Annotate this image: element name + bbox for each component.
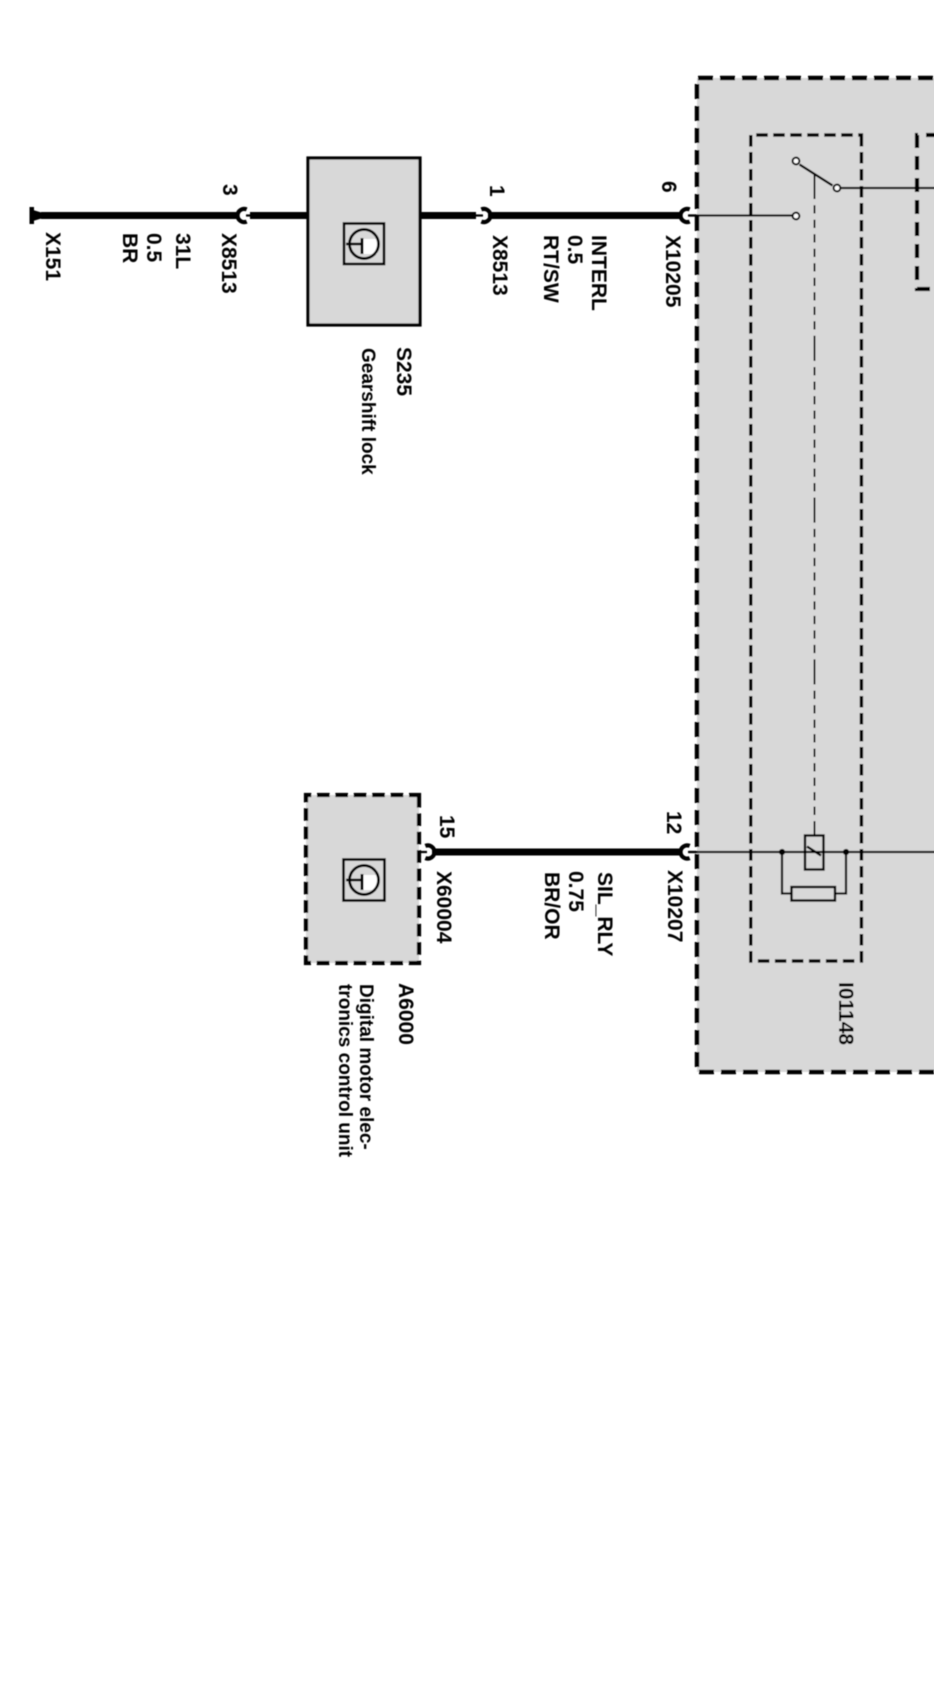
svg-text:1: 1 (485, 185, 508, 197)
svg-text:X8513: X8513 (217, 233, 240, 294)
svg-text:X10205: X10205 (661, 235, 684, 308)
svg-text:6: 6 (657, 181, 680, 193)
svg-text:15: 15 (435, 815, 458, 839)
svg-text:BR: BR (118, 233, 141, 263)
svg-text:X8513: X8513 (488, 235, 511, 296)
svg-text:SIL_RLY: SIL_RLY (593, 872, 616, 956)
svg-text:Gearshift lock: Gearshift lock (357, 348, 378, 475)
svg-text:31L: 31L (171, 233, 194, 269)
svg-text:S235: S235 (392, 347, 415, 396)
svg-text:Digital motor elec-: Digital motor elec- (355, 984, 376, 1150)
svg-text:X10207: X10207 (663, 870, 686, 942)
svg-text:I01148: I01148 (834, 982, 857, 1045)
svg-text:3: 3 (218, 184, 241, 196)
svg-text:0.5: 0.5 (142, 233, 165, 263)
svg-text:12: 12 (662, 811, 685, 834)
svg-text:RT/SW: RT/SW (539, 235, 562, 303)
svg-text:tronics control unit: tronics control unit (334, 984, 355, 1158)
svg-text:0.75: 0.75 (564, 871, 587, 912)
svg-text:X151: X151 (41, 232, 64, 281)
svg-text:INTERL: INTERL (587, 235, 610, 311)
svg-text:BR/OR: BR/OR (540, 872, 563, 940)
svg-text:X60004: X60004 (432, 871, 455, 944)
svg-text:A6000: A6000 (394, 983, 417, 1045)
svg-text:0.5: 0.5 (563, 235, 586, 265)
